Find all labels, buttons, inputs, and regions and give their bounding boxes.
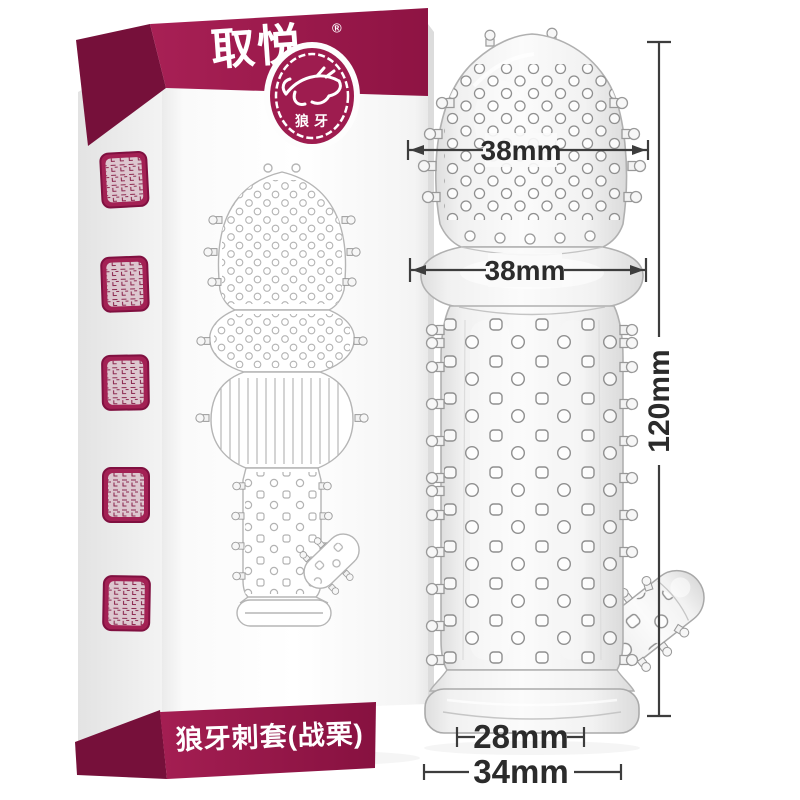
box-title-group: 狼牙刺套(战栗): [175, 718, 364, 756]
packaging-box: 取悦 ® 狼牙: [75, 8, 434, 779]
dimension-label-length: 120mm: [643, 349, 676, 452]
seal-stamp: [103, 468, 149, 522]
product-photo-stage: 取悦 ® 狼牙: [0, 0, 800, 800]
wolf-badge: 狼牙: [264, 42, 360, 150]
badge-oval: [270, 48, 354, 144]
dimension-label-bulb: 38mm: [485, 255, 566, 286]
seal-stamp: [100, 152, 149, 208]
dimension-label-base: 34mm: [473, 753, 568, 790]
seal-stamp: [102, 355, 149, 410]
sleeve-horn: [485, 30, 495, 46]
dimension-label-opening: 28mm: [473, 718, 568, 755]
dimension-label-length-group: 120mm: [642, 337, 676, 465]
box-title: 狼牙刺套(战栗): [175, 718, 364, 756]
sleeve-shaft: [427, 306, 638, 670]
seal-stamp: [101, 256, 149, 312]
seal-stamp: [103, 576, 150, 631]
product-sleeve: [419, 28, 724, 733]
reg-mark: ®: [332, 20, 345, 36]
badge-label: 狼牙: [295, 113, 333, 129]
product-image: 取悦 ® 狼牙: [0, 0, 800, 800]
dimension-label-head: 38mm: [481, 135, 562, 166]
